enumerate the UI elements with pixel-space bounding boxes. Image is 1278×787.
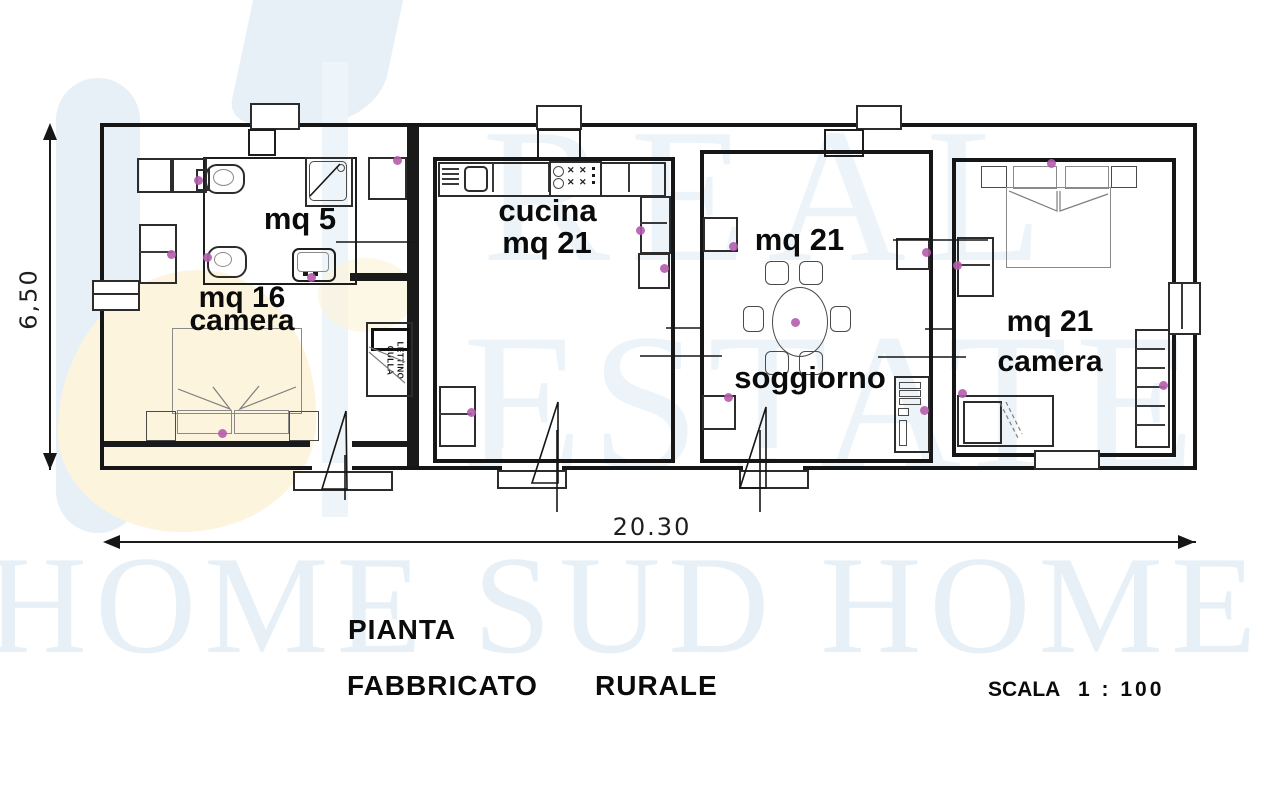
stove-burner-icon: ✕ <box>567 178 575 187</box>
interior-wall <box>350 273 407 281</box>
dining-table <box>772 287 828 357</box>
cabinet <box>640 196 671 254</box>
interior-wall <box>407 127 419 466</box>
chimney <box>856 105 902 130</box>
stove-burner-icon <box>553 178 564 189</box>
height-dimension-line <box>49 127 51 470</box>
toilet-bowl-inner <box>213 169 234 186</box>
window-mullion <box>1181 284 1183 329</box>
marker-dot <box>922 248 931 257</box>
bathroom-area-label: mq 5 <box>252 203 348 234</box>
counter-divider <box>628 163 630 192</box>
crib-label-line2: CULLA <box>385 330 394 392</box>
building-type-word1: FABBRICATO <box>347 672 547 700</box>
stove-burner-icon <box>553 166 564 177</box>
sink-drainer-line <box>442 183 459 185</box>
chair <box>799 261 823 285</box>
width-dimension-arrow-right-icon <box>1178 535 1195 549</box>
interior-wall <box>352 441 407 447</box>
chimney <box>536 105 582 130</box>
door-threshold <box>497 470 567 489</box>
stove-burner-icon: ✕ <box>567 166 575 175</box>
marker-dot <box>393 156 402 165</box>
kitchen-sink-basin <box>464 166 488 192</box>
interior-wall <box>104 441 310 447</box>
shelf-slat <box>899 398 921 405</box>
nightstand <box>146 411 176 441</box>
door-threshold <box>293 471 393 491</box>
door-opening <box>743 448 801 458</box>
soggiorno-name-label: soggiorno <box>730 362 890 393</box>
height-dimension-label: 6,50 <box>16 259 41 339</box>
double-bed <box>1006 187 1111 268</box>
marker-dot <box>791 318 800 327</box>
door-threshold <box>739 470 809 489</box>
marker-dot <box>307 273 316 282</box>
shelf-slat <box>899 382 921 389</box>
marker-dot <box>467 408 476 417</box>
shelving-divider <box>1136 348 1165 350</box>
stove-knob-icon <box>592 167 595 170</box>
camera-right-area-label: mq 21 <box>1000 307 1100 337</box>
watermark-home-sud-home: HOME SUD HOME <box>0 536 1264 676</box>
marker-dot <box>194 176 203 185</box>
chair <box>830 306 851 332</box>
nightstand <box>981 166 1007 188</box>
shelf-slat <box>899 390 921 397</box>
cucina-area-label: mq 21 <box>462 227 632 258</box>
shelf-slat <box>898 408 909 416</box>
stove-knob-icon <box>592 174 595 177</box>
camera-left-name-label: camera <box>182 306 302 336</box>
chair <box>765 261 789 285</box>
marker-dot <box>636 226 645 235</box>
marker-dot <box>920 406 929 415</box>
nightstand <box>1111 166 1137 188</box>
marker-dot <box>953 261 962 270</box>
shelving-divider <box>1136 367 1165 369</box>
stove-burner-icon: ✕ <box>579 178 587 187</box>
door-opening <box>502 448 560 458</box>
cucina-name-label: cucina <box>455 195 640 226</box>
height-dimension-arrow-down-icon <box>43 453 57 470</box>
cabinet-divider <box>640 222 667 224</box>
camera-right-name-label: camera <box>985 347 1115 377</box>
soggiorno-area-label: mq 21 <box>742 224 857 255</box>
scale-label: SCALA <box>988 679 1078 700</box>
cabinet <box>368 157 407 200</box>
marker-dot <box>203 253 212 262</box>
marker-dot <box>167 250 176 259</box>
pillow <box>963 401 1002 444</box>
chimney <box>250 103 300 130</box>
pillow <box>1065 166 1109 189</box>
wardrobe <box>957 237 994 297</box>
wall-pier <box>248 129 276 156</box>
marker-dot <box>1047 159 1056 168</box>
counter-divider <box>492 163 494 192</box>
window <box>1168 282 1201 335</box>
floor-plan-page: REAL ESTATE HOME SUD HOME 6,50 20.30 <box>0 0 1278 787</box>
shower-drain-icon <box>337 164 345 172</box>
marker-dot <box>729 242 738 251</box>
bidet-inner <box>214 252 232 267</box>
marker-dot <box>958 389 967 398</box>
marker-dot <box>1159 381 1168 390</box>
wall-pier <box>537 129 581 159</box>
sink-drainer-line <box>442 173 459 175</box>
height-dimension-arrow-up-icon <box>43 123 57 140</box>
stove-burner-icon: ✕ <box>579 166 587 175</box>
double-bed <box>172 328 302 414</box>
door-threshold <box>1034 450 1100 470</box>
nightstand <box>289 411 319 441</box>
building-type-word2: RURALE <box>595 672 755 700</box>
marker-dot <box>660 264 669 273</box>
chair <box>743 306 764 332</box>
sink-drainer-line <box>442 168 459 170</box>
window <box>92 293 140 311</box>
sink-drainer-line <box>442 178 459 180</box>
shelving-divider <box>1136 424 1165 426</box>
washbasin-inner <box>297 252 329 272</box>
scale-value: 1 : 100 <box>1078 679 1168 700</box>
plan-title: PIANTA <box>348 616 548 644</box>
wardrobe <box>137 158 174 193</box>
width-dimension-label: 20.30 <box>607 513 697 539</box>
pillow <box>234 410 289 434</box>
width-dimension-line <box>107 541 1196 543</box>
pillow <box>1013 166 1057 189</box>
marker-dot <box>724 393 733 402</box>
stove-knob-icon <box>592 181 595 184</box>
marker-dot <box>218 429 227 438</box>
shelving-divider <box>1136 405 1165 407</box>
shelf-slat <box>899 420 907 446</box>
crib-label-line1: LETTINO <box>395 330 404 392</box>
width-dimension-arrow-left-icon <box>103 535 120 549</box>
